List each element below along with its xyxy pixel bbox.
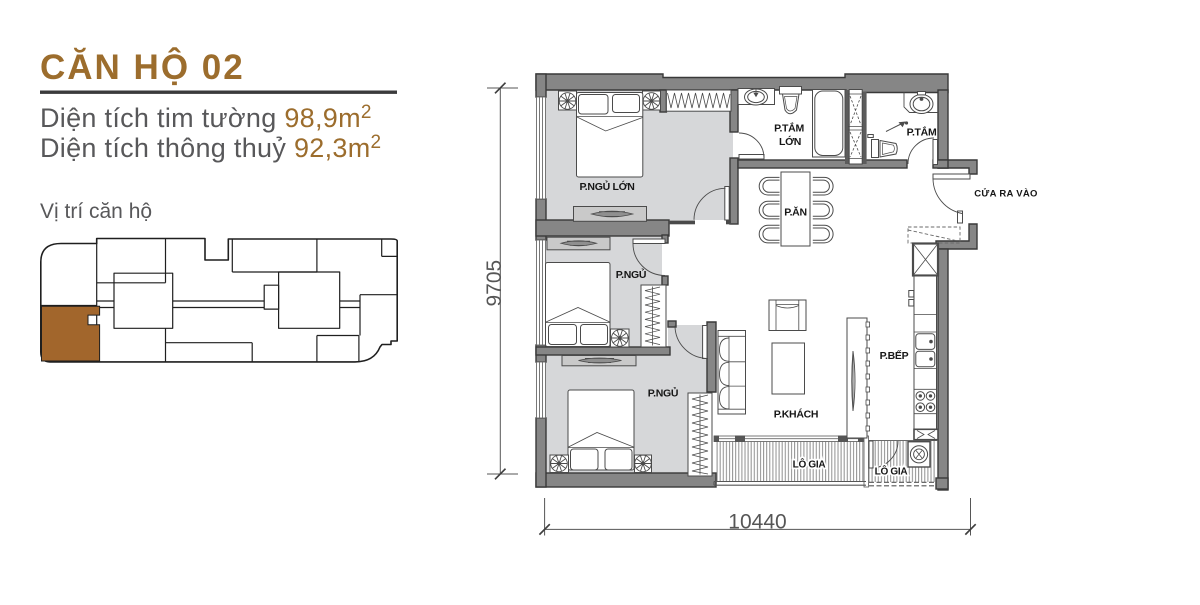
svg-text:P.TẮM: P.TẮM (907, 126, 937, 139)
svg-text:P.ĂN: P.ĂN (784, 206, 807, 219)
svg-text:Diện tích thông thuỷ 92,3m2: Diện tích thông thuỷ 92,3m2 (40, 132, 381, 163)
svg-text:Vị trí căn hộ: Vị trí căn hộ (40, 200, 152, 223)
svg-text:9705: 9705 (483, 260, 506, 307)
svg-text:Diện tích tim tường 98,9m2: Diện tích tim tường 98,9m2 (40, 102, 372, 133)
svg-text:P.TẮM: P.TẮM (774, 122, 804, 135)
svg-text:P.NGỦ: P.NGỦ (648, 387, 678, 400)
svg-text:P.BẾP: P.BẾP (880, 349, 909, 362)
svg-text:P.KHÁCH: P.KHÁCH (774, 408, 818, 421)
svg-text:CĂN HỘ 02: CĂN HỘ 02 (40, 47, 245, 87)
svg-text:10440: 10440 (728, 511, 786, 534)
svg-text:LÔ GIA: LÔ GIA (793, 458, 826, 471)
svg-text:P.NGỦ: P.NGỦ (616, 268, 646, 281)
svg-text:LÔ GIA: LÔ GIA (875, 465, 908, 478)
svg-text:LỚN: LỚN (779, 135, 801, 148)
svg-text:P.NGỦ LỚN: P.NGỦ LỚN (579, 180, 634, 193)
svg-text:CỬA RA VÀO: CỬA RA VÀO (974, 188, 1037, 200)
